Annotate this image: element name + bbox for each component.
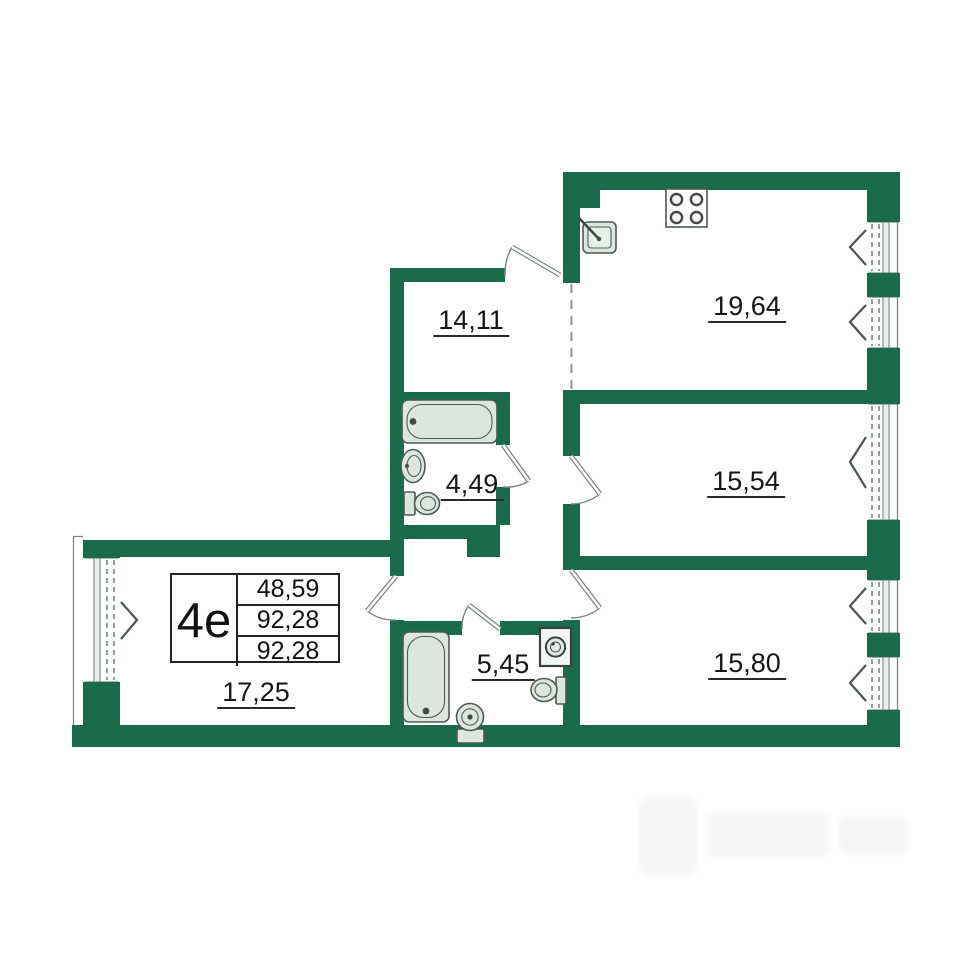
bathtub-large-icon <box>403 632 449 722</box>
entrance-door <box>505 247 560 277</box>
window-opening-chevron <box>850 588 866 624</box>
room-area-label-room-upper: 15,54 <box>707 467 785 498</box>
window-room-lower-2 <box>850 657 899 710</box>
room-left-door <box>367 576 396 620</box>
room-upper-door <box>571 456 600 504</box>
window-opening-chevron <box>121 602 137 639</box>
window-kitchen-1 <box>850 222 899 273</box>
room-area-label-bathroom-large: 5,45 <box>472 650 535 681</box>
bathroom-small-door <box>503 445 529 487</box>
bathtub-small-icon <box>402 400 497 443</box>
window-opening-chevron <box>850 665 866 701</box>
room-area-label-hallway: 14,11 <box>433 306 509 337</box>
room-area-label-room-lower: 15,80 <box>708 649 786 680</box>
toilet-small-icon <box>404 492 440 515</box>
left-balcony-line <box>74 536 84 746</box>
window-opening-chevron <box>850 305 866 340</box>
window-kitchen-2 <box>850 297 899 348</box>
apartment-area-total: 92,28 <box>238 606 338 637</box>
window-room-lower-1 <box>850 580 899 633</box>
stove-icon <box>666 189 707 227</box>
window-room-upper <box>850 404 899 520</box>
room-area-label-kitchen-living: 19,64 <box>708 292 786 323</box>
apartment-card: 4е 48,59 92,28 92,28 <box>170 573 340 663</box>
apartment-area-living: 48,59 <box>238 575 338 606</box>
toilet-large-icon <box>457 704 485 744</box>
room-lower-door <box>571 570 600 618</box>
apartment-type-label: 4е <box>172 575 238 666</box>
apartment-area-reduced: 92,28 <box>238 637 338 666</box>
window-left <box>84 558 137 682</box>
room-area-label-bathroom-small: 4,49 <box>441 470 504 501</box>
pedestal-sink-icon <box>401 450 425 483</box>
bathroom-large-door <box>462 605 500 629</box>
toilet-wall-icon <box>531 677 566 704</box>
window-opening-chevron <box>850 437 866 488</box>
floor-plan: 14,11 19,64 4,49 15,54 5,45 15,80 17,25 … <box>0 0 960 960</box>
kitchen-sink-icon <box>579 218 616 253</box>
window-opening-chevron <box>850 230 866 265</box>
room-area-label-room-left: 17,25 <box>217 678 295 709</box>
washing-machine-icon <box>540 628 571 666</box>
